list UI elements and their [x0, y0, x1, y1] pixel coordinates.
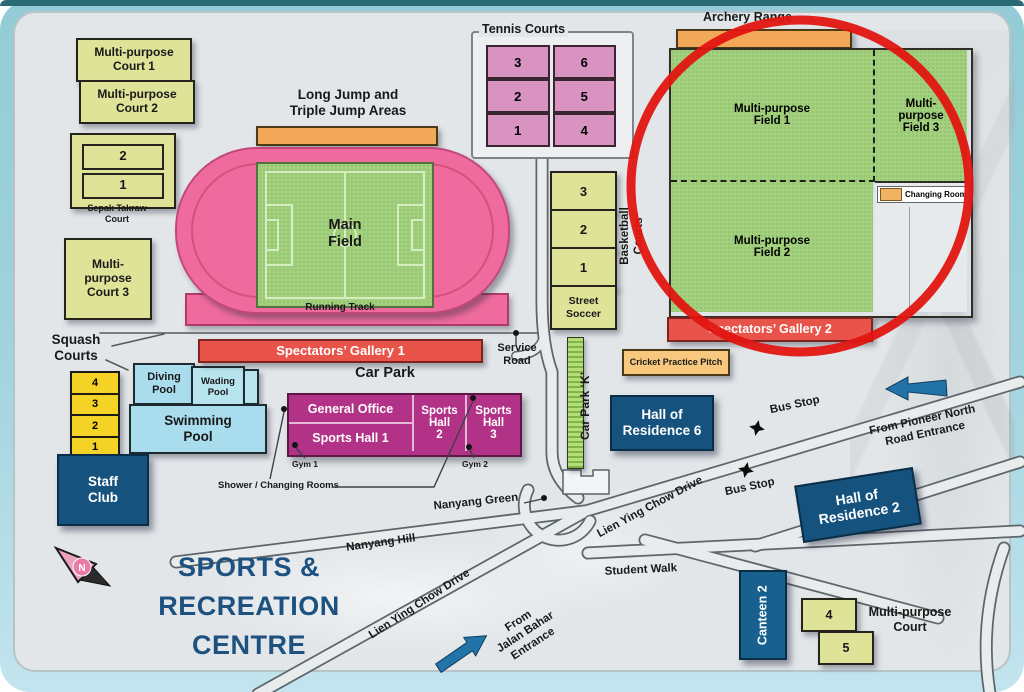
sports-hall-1: Sports Hall 1 — [289, 424, 412, 451]
hall-of-residence-2-label: Hall of Residence 2 — [815, 483, 901, 528]
tennis-court-1-label: 1 — [514, 123, 521, 138]
changing-room-callout: Changing Room — [877, 186, 970, 203]
staff-club-label: Staff Club — [88, 474, 118, 505]
multi-purpose-field-2: Multi-purpose Field 2 — [671, 182, 873, 312]
swimming-pool-label: Swimming Pool — [164, 413, 232, 444]
street-soccer-court: Street Soccer — [550, 285, 617, 330]
spectators-gallery-2: Spectators’ Gallery 2 — [667, 317, 873, 342]
main-field: Main Field — [256, 162, 434, 308]
tennis-court-4: 4 — [553, 113, 617, 147]
sports-hall-2: Sports Hall 2 — [414, 395, 465, 451]
basketball-court-1-label: 1 — [580, 261, 587, 276]
car-park-k-label: Car Park ‘K’ — [577, 366, 593, 446]
multi-purpose-field-2-label: Multi-purpose Field 2 — [734, 235, 810, 259]
cricket-practice-pitch: Cricket Practice Pitch — [622, 349, 730, 376]
gym-1-label: Gym 1 — [292, 459, 318, 469]
tennis-courts-title: Tennis Courts — [479, 22, 568, 37]
tennis-court-2-label: 2 — [514, 89, 521, 104]
sports-hall-3: Sports Hall 3 — [467, 395, 520, 451]
canteen-2-label: Canteen 2 — [756, 585, 770, 645]
multi-purpose-field-3: Multi- purpose Field 3 — [875, 50, 967, 183]
multi-purpose-court-2: Multi-purpose Court 2 — [79, 80, 195, 124]
tennis-courts-grid: 3 6 2 5 1 4 — [486, 45, 616, 147]
changing-room-area: Changing Room — [875, 183, 967, 312]
sepak-takraw-cell-2: 2 — [82, 144, 164, 170]
sports-hall-1-label: Sports Hall 1 — [312, 431, 388, 445]
sports-hall-3-label: Sports Hall 3 — [475, 405, 511, 441]
tennis-court-6: 6 — [553, 45, 617, 79]
basketball-courts-label: Basketball Courts — [617, 176, 649, 296]
squash-court-3-label: 3 — [92, 398, 98, 410]
long-jump-label: Long Jump and Triple Jump Areas — [250, 84, 446, 122]
cricket-practice-pitch-label: Cricket Practice Pitch — [630, 357, 723, 367]
shower-changing-rooms-label: Shower / Changing Rooms — [218, 480, 339, 491]
tennis-court-5: 5 — [553, 79, 617, 113]
archery-range-label: Archery Range — [703, 10, 792, 25]
changing-room-swatch — [880, 188, 902, 201]
tennis-court-3: 3 — [486, 45, 550, 79]
sepak-takraw-cell-1: 1 — [82, 173, 164, 199]
squash-courts-block: 4 3 2 1 — [70, 371, 120, 459]
tennis-court-6-label: 6 — [581, 55, 588, 70]
multi-purpose-court-4-label: 4 — [826, 608, 833, 622]
title-line-1: SPORTS & — [148, 548, 350, 587]
multi-purpose-fields-block: Multi-purpose Field 1 Multi- purpose Fie… — [669, 48, 973, 318]
diving-pool: Diving Pool — [133, 363, 195, 405]
sepak-cell-1-label: 1 — [119, 178, 126, 193]
sepak-takraw-caption: Sepak Takraw Court — [62, 201, 172, 227]
archery-range-strip — [676, 29, 852, 49]
spectators-gallery-1: Spectators’ Gallery 1 — [198, 339, 483, 363]
squash-court-4: 4 — [72, 373, 118, 395]
car-park-label: Car Park — [345, 364, 425, 384]
nanyang-green-building-outline — [563, 470, 609, 494]
long-jump-strip — [256, 126, 438, 146]
wading-pool-label: Wading Pool — [201, 377, 235, 399]
main-field-label: Main Field — [305, 204, 385, 264]
squash-courts-label: Squash Courts — [36, 328, 116, 368]
basketball-court-3-label: 3 — [580, 185, 587, 200]
multi-purpose-court-1: Multi-purpose Court 1 — [76, 38, 192, 82]
canteen-2: Canteen 2 — [739, 570, 787, 660]
changing-room-divider — [909, 207, 910, 307]
basketball-court-3: 3 — [550, 171, 617, 213]
multi-purpose-court-4: 4 — [801, 598, 857, 632]
sports-halls-block: General Office Sports Hall 1 Sports Hall… — [287, 393, 522, 457]
running-track-label: Running Track — [260, 301, 420, 315]
title-line-2: RECREATION — [148, 587, 350, 626]
multi-purpose-field-1-label: Multi-purpose Field 1 — [734, 103, 810, 127]
spectators-gallery-2-label: Spectators’ Gallery 2 — [708, 322, 832, 336]
wading-pool-annex — [243, 369, 259, 405]
basketball-court-2: 2 — [550, 209, 617, 251]
tennis-court-5-label: 5 — [581, 89, 588, 104]
general-office-label: General Office — [308, 402, 393, 416]
diving-pool-label: Diving Pool — [147, 371, 181, 396]
squash-court-1-label: 1 — [92, 441, 98, 453]
staff-club: Staff Club — [57, 454, 149, 526]
tennis-court-3-label: 3 — [514, 55, 521, 70]
multi-purpose-field-3-label: Multi- purpose Field 3 — [898, 98, 943, 134]
squash-court-2: 2 — [72, 416, 118, 438]
swimming-pool: Swimming Pool — [129, 404, 267, 454]
tennis-court-1: 1 — [486, 113, 550, 147]
basketball-court-1: 1 — [550, 247, 617, 289]
street-soccer-label: Street Soccer — [566, 295, 601, 319]
hall-of-residence-6: Hall of Residence 6 — [610, 395, 714, 451]
multi-purpose-field-1: Multi-purpose Field 1 — [671, 50, 875, 182]
squash-court-4-label: 4 — [92, 377, 98, 389]
page-title: SPORTS & RECREATION CENTRE — [148, 548, 350, 665]
basketball-court-2-label: 2 — [580, 223, 587, 238]
multi-purpose-court-3: Multi- purpose Court 3 — [64, 238, 152, 320]
spectators-gallery-1-label: Spectators’ Gallery 1 — [276, 344, 405, 359]
squash-court-2-label: 2 — [92, 420, 98, 432]
service-road-label: Service Road — [490, 339, 544, 371]
multi-purpose-court-5-label: 5 — [843, 641, 850, 655]
squash-court-3: 3 — [72, 395, 118, 417]
changing-room-label: Changing Room — [905, 190, 967, 199]
gym-2-label: Gym 2 — [462, 459, 488, 469]
tennis-court-2: 2 — [486, 79, 550, 113]
multi-purpose-court-1-label: Multi-purpose Court 1 — [94, 46, 173, 74]
sepak-takraw-court: 2 1 — [70, 133, 176, 209]
sports-hall-2-label: Sports Hall 2 — [421, 405, 457, 441]
sepak-cell-2-label: 2 — [119, 149, 126, 164]
tennis-court-4-label: 4 — [581, 123, 588, 138]
sports-recreation-centre-map: Multi-purpose Court 1 Multi-purpose Cour… — [0, 0, 1024, 692]
multi-purpose-court-3-label: Multi- purpose Court 3 — [84, 258, 131, 299]
hall-of-residence-6-label: Hall of Residence 6 — [623, 407, 702, 438]
multi-purpose-court-45-label: Multi-purpose Court — [858, 602, 962, 638]
multi-purpose-court-2-label: Multi-purpose Court 2 — [97, 88, 176, 116]
title-line-3: CENTRE — [148, 626, 350, 665]
general-office: General Office — [289, 395, 412, 422]
